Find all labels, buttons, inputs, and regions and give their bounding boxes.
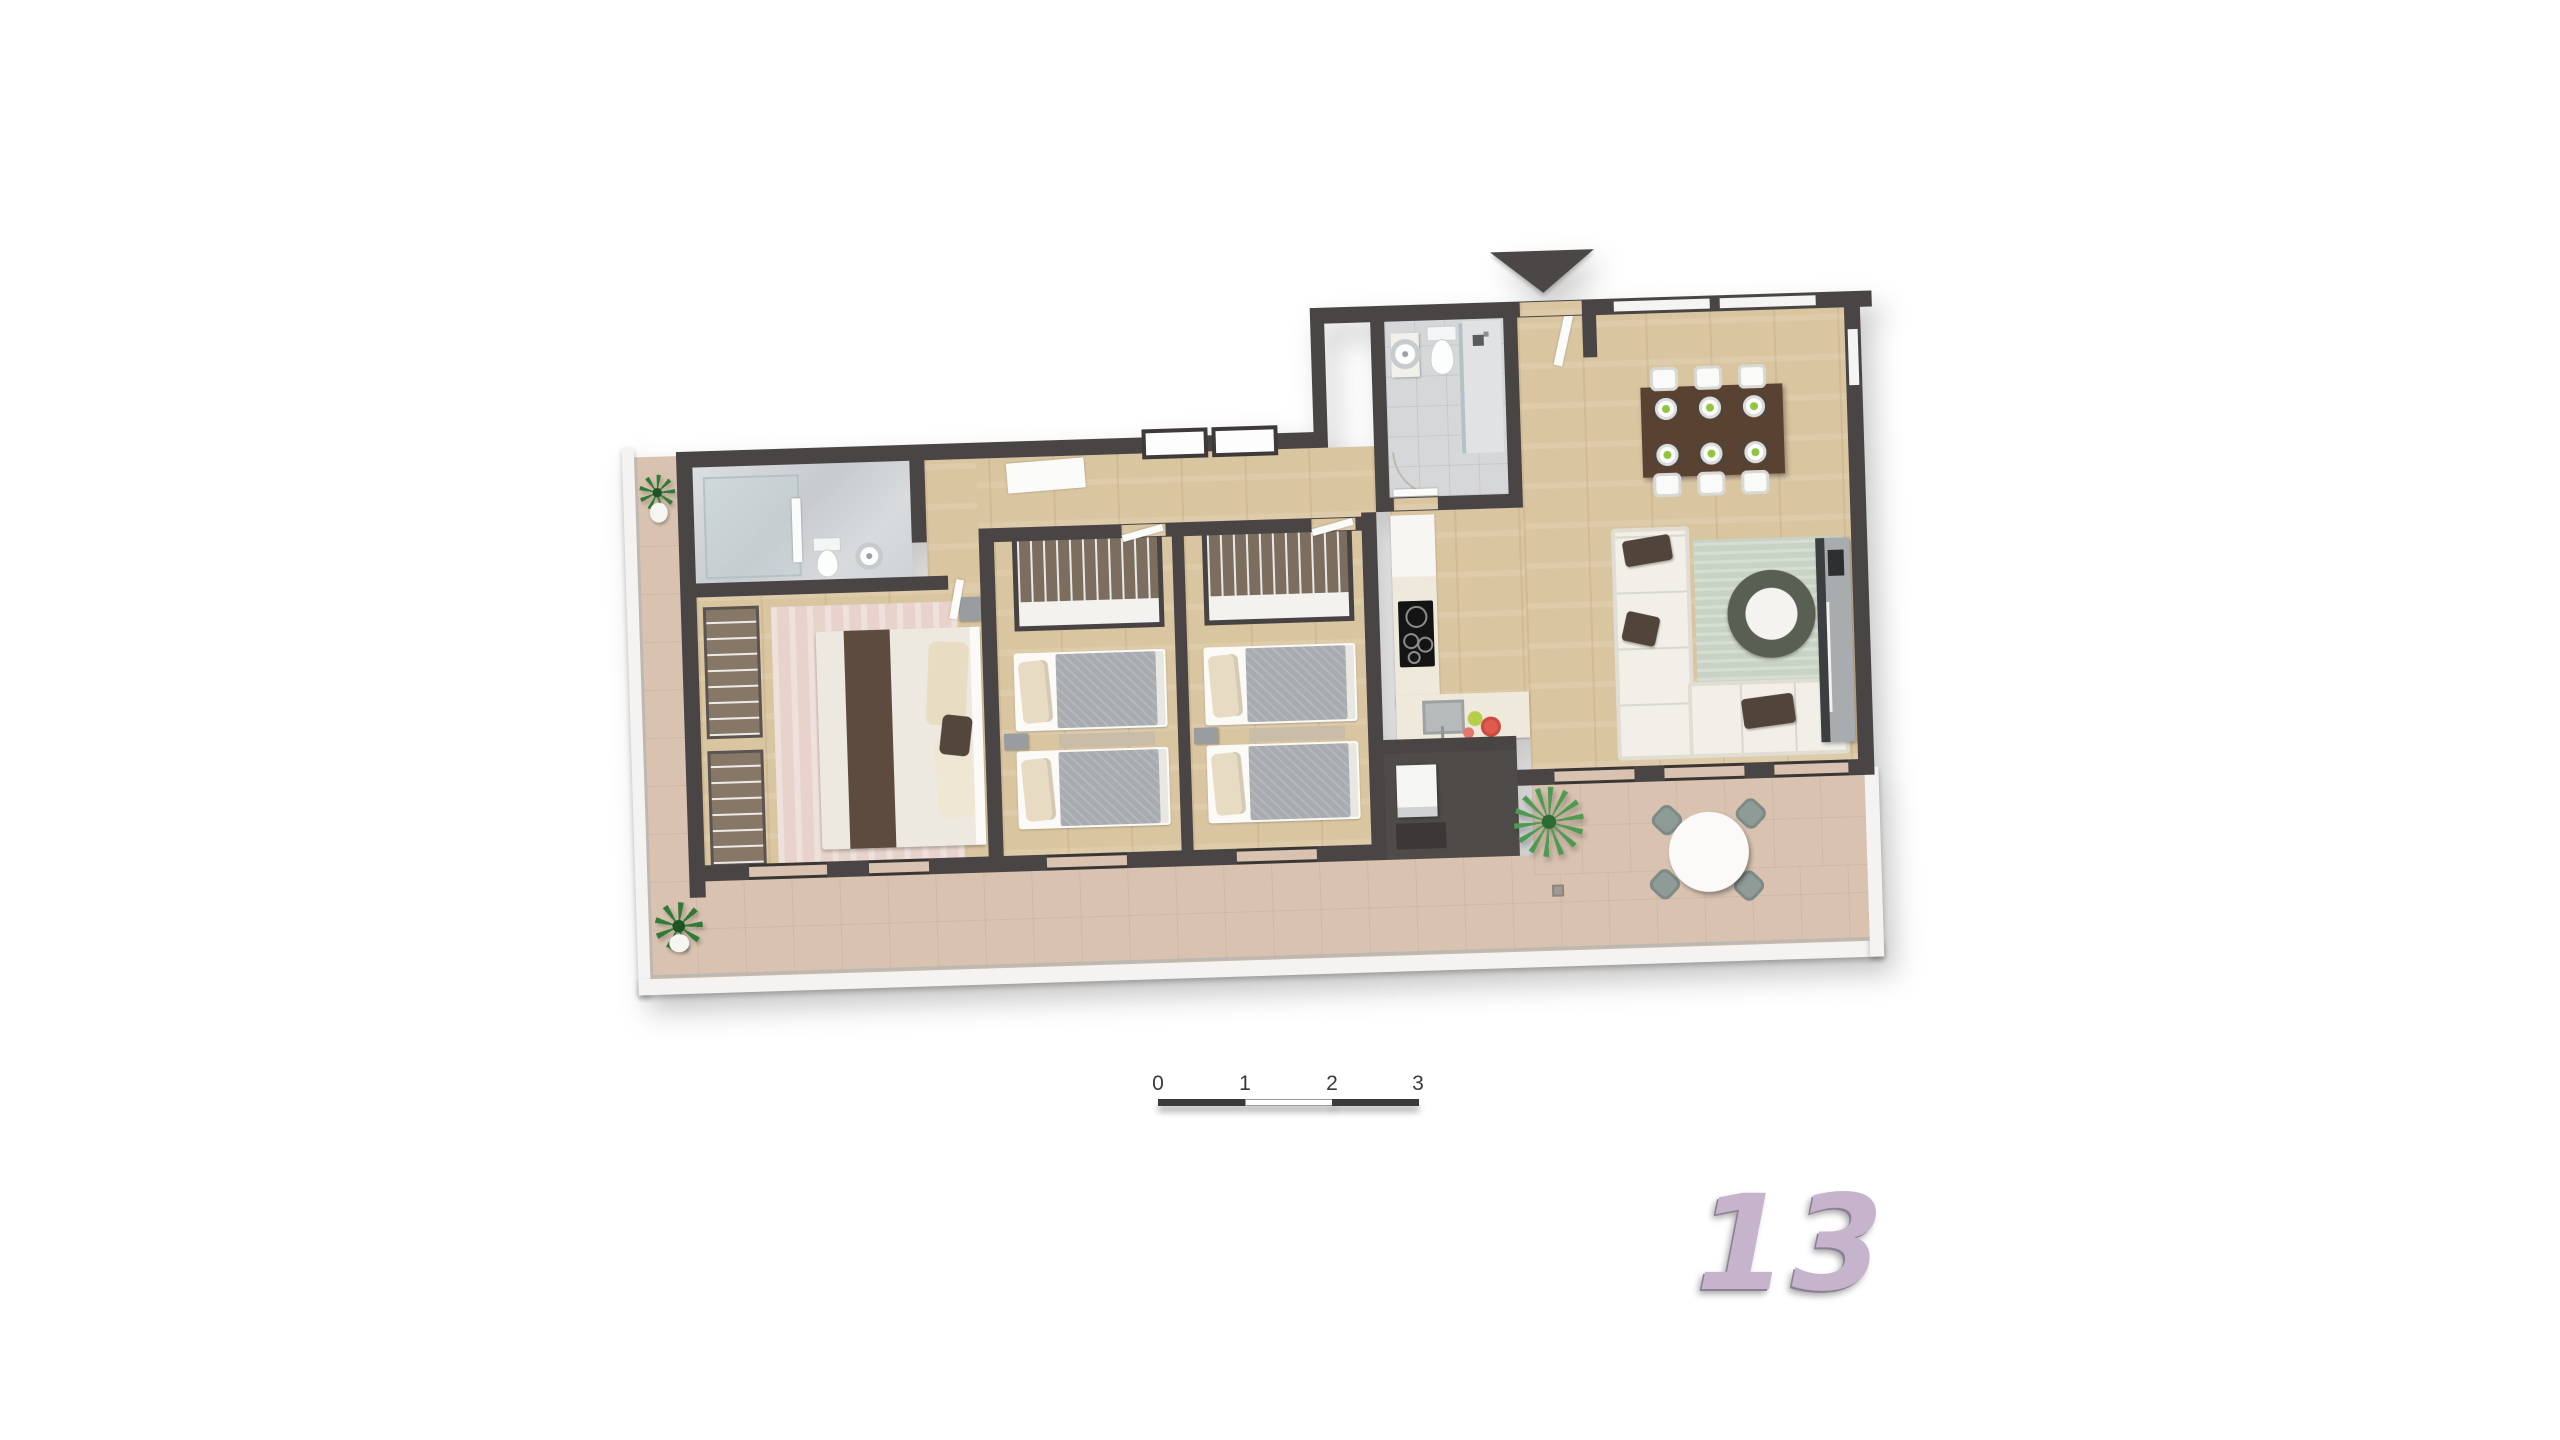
scale-segment-dark — [1158, 1099, 1245, 1106]
master-nightstand — [959, 597, 984, 622]
wall-ensuite-east — [909, 460, 927, 542]
bedroom2-wardrobe-front — [1209, 592, 1350, 620]
floor-plan — [609, 268, 1900, 1008]
duvet — [1248, 743, 1350, 820]
scale-label-0: 0 — [1152, 1072, 1164, 1096]
tv-unit — [1815, 537, 1855, 742]
master-wardrobe-upper — [703, 606, 763, 740]
kitchen-faucet — [1441, 726, 1444, 738]
dining-chair — [1741, 470, 1770, 495]
bed-foot — [1348, 743, 1358, 817]
wall-dining-stub — [1582, 299, 1598, 357]
floor-plan-canvas: 0 1 2 3 13 — [0, 0, 2560, 1440]
master-wardrobe-lower — [707, 750, 767, 868]
pillow — [1207, 654, 1243, 719]
entrance-arrow-icon — [1490, 249, 1595, 294]
glass-door-living-c — [1774, 759, 1848, 777]
burner — [1417, 636, 1433, 652]
bedroom1-bed-a — [1013, 649, 1167, 732]
washing-machine — [1396, 764, 1438, 817]
glass-door-master-a — [749, 862, 827, 880]
unit-number: 13 — [1696, 1178, 1888, 1310]
duvet — [1245, 645, 1347, 722]
glass-door-living-b — [1664, 763, 1744, 782]
master-bed-cushion — [939, 714, 973, 757]
scale-label-3: 3 — [1412, 1072, 1424, 1096]
wall-step-vertical — [1310, 308, 1328, 448]
bedroom2-bed-b — [1206, 741, 1360, 824]
master-entry-floor — [924, 459, 980, 591]
pillow — [1018, 660, 1054, 725]
dining-chair — [1650, 367, 1679, 392]
bathroom-door-gap — [1394, 497, 1438, 510]
bedroom1-nightstand — [1004, 733, 1028, 750]
bedroom2-bed-a — [1203, 643, 1357, 726]
glass-door-living-a — [1554, 766, 1634, 785]
dining-chair — [1738, 364, 1767, 389]
tv-screen-edge — [1826, 602, 1832, 712]
bed-foot — [1158, 749, 1168, 823]
shower-head-icon — [1473, 335, 1484, 346]
window-corridor-a — [1141, 427, 1208, 459]
duvet — [1058, 749, 1160, 826]
scale-label-1: 1 — [1239, 1072, 1251, 1096]
bedroom1-bed-b — [1016, 747, 1170, 830]
burner — [1407, 651, 1420, 664]
glass-door-bed2 — [1237, 846, 1317, 865]
scale-bar: 0 1 2 3 — [1158, 1072, 1418, 1112]
scale-label-2: 2 — [1326, 1072, 1338, 1096]
pillow — [1021, 758, 1057, 823]
tv-accessory — [1828, 549, 1845, 575]
window-corridor-b — [1211, 425, 1278, 457]
entrance-door-gap — [1520, 301, 1582, 317]
ensuite-shower — [703, 474, 802, 579]
pillow — [1211, 752, 1247, 817]
scale-segment-light — [1245, 1099, 1334, 1106]
kitchen-tall-cabinet — [1390, 514, 1436, 577]
bedroom1-wardrobe — [1012, 531, 1165, 632]
dining-chair — [1653, 473, 1682, 498]
bedroom2-nightstand — [1194, 727, 1218, 744]
window-right — [1848, 329, 1860, 385]
bed-foot — [1155, 651, 1165, 725]
glass-door-bed1 — [1047, 852, 1127, 871]
bathroom-door-leaf — [1393, 488, 1437, 496]
scale-segment-dark — [1332, 1099, 1419, 1106]
floor-drain — [1552, 884, 1564, 896]
dining-chair — [1697, 471, 1726, 496]
duvet — [1055, 651, 1157, 728]
glass-door-master-b — [869, 858, 929, 876]
bed-foot — [1345, 645, 1355, 719]
master-double-bed — [816, 627, 987, 850]
kitchen-cooktop — [1398, 600, 1435, 667]
burner — [1405, 606, 1428, 629]
utility-counter — [1396, 822, 1447, 850]
bedroom1-wardrobe-front — [1019, 598, 1160, 626]
bedroom2-wardrobe — [1202, 525, 1355, 626]
dining-chair — [1694, 365, 1723, 390]
master-bed-runner — [844, 629, 897, 848]
